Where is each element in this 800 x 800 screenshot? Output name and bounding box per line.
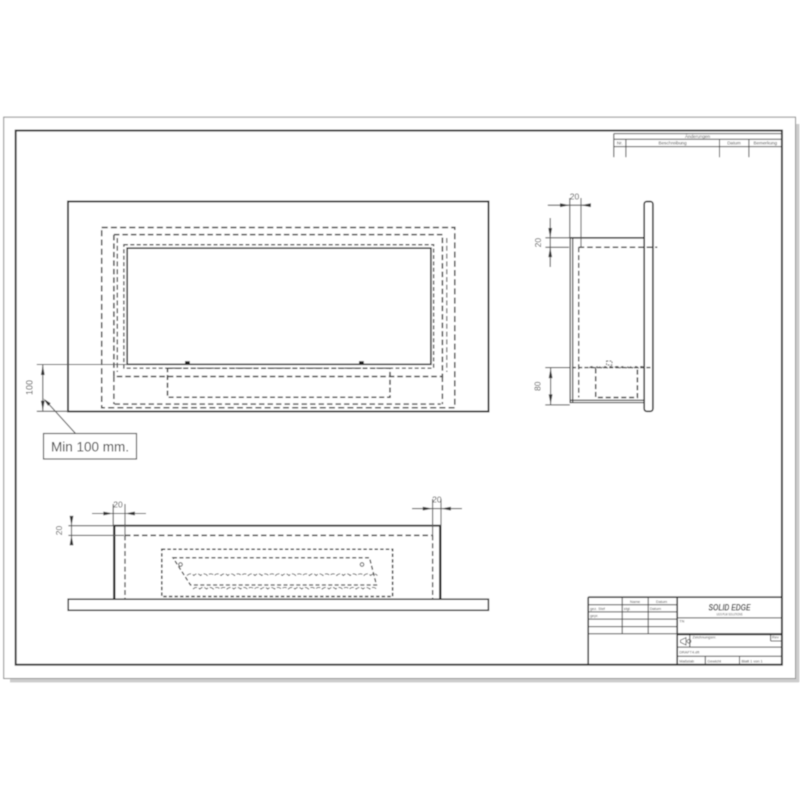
svg-text:stgl.: stgl. [624,607,631,611]
svg-text:Datum: Datum [727,141,741,146]
svg-text:Name: Name [630,600,640,604]
svg-text:20: 20 [54,526,64,536]
svg-text:Blatt 1 von 1: Blatt 1 von 1 [742,659,763,663]
svg-text:gez. Stef: gez. Stef [590,607,606,611]
svg-text:100: 100 [25,380,35,395]
svg-text:Beschreibung: Beschreibung [659,141,688,146]
svg-text:Datum: Datum [650,607,661,611]
svg-text:Maßstab: Maßstab [679,659,694,663]
svg-text:20: 20 [432,495,442,505]
svg-text:Nr.: Nr. [617,141,623,146]
svg-text:DRAFT4.dft: DRAFT4.dft [679,651,700,655]
svg-text:Datum: Datum [656,600,667,604]
svg-text:20: 20 [113,500,123,510]
svg-text:UGS PLM SOLUTIONS: UGS PLM SOLUTIONS [717,613,743,617]
svg-text:Bemerkung: Bemerkung [754,141,778,146]
svg-text:gepr.: gepr. [590,614,598,618]
svg-text:Änderungen: Änderungen [685,133,710,139]
svg-text:Rev: Rev [772,636,779,640]
svg-text:80: 80 [533,381,543,391]
svg-text:Min 100 mm.: Min 100 mm. [51,440,129,455]
svg-text:20: 20 [533,238,543,248]
svg-text:TN: TN [679,620,684,624]
svg-text:Zeichnungsnr.: Zeichnungsnr. [693,636,717,640]
svg-text:Gewicht: Gewicht [707,659,722,663]
svg-text:20: 20 [570,192,580,202]
